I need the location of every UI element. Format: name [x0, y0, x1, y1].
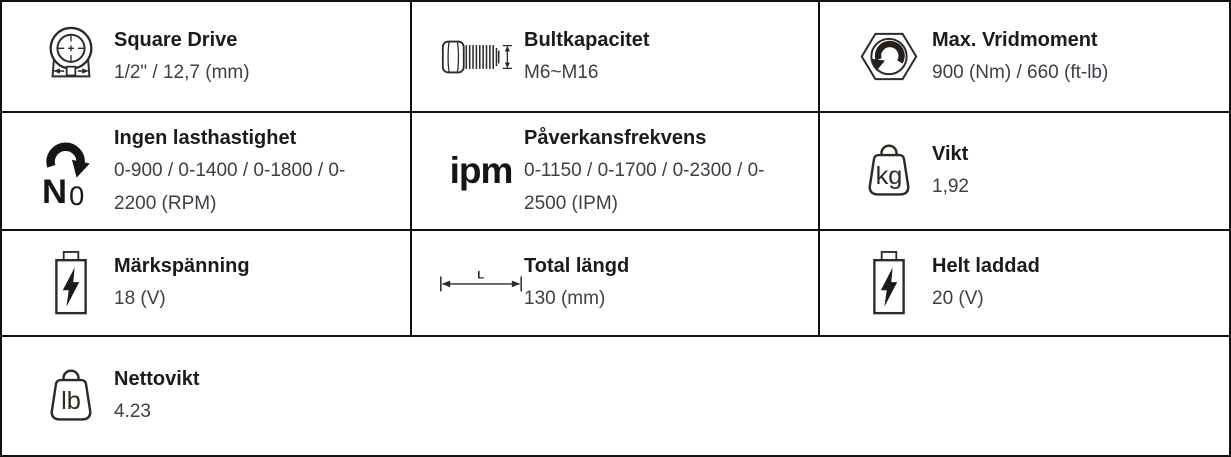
- no-load-speed-icon: N 0: [28, 136, 114, 206]
- product-specs-table: Square Drive 1/2" / 12,7 (mm) Bultkapaci…: [0, 0, 1231, 457]
- spec-title: Total längd: [524, 251, 790, 281]
- spec-cell-bolt-capacity: Bultkapacitet M6~M16: [412, 2, 820, 113]
- weight-kg-icon: kg: [846, 141, 932, 201]
- impact-rate-icon: ipm: [438, 150, 524, 192]
- spec-title: Nettovikt: [114, 364, 1223, 394]
- spec-cell-weight-kg: kg Vikt 1,92: [820, 113, 1229, 231]
- bolt-capacity-icon: [438, 37, 524, 77]
- spec-cell-max-torque: Max. Vridmoment 900 (Nm) / 660 (ft-lb): [820, 2, 1229, 113]
- spec-cell-impact-rate: ipm Påverkansfrekvens 0-1150 / 0-1700 / …: [412, 113, 820, 231]
- spec-cell-rated-voltage: Märkspänning 18 (V): [2, 231, 412, 337]
- spec-value: 20 (V): [932, 282, 1198, 315]
- spec-title: Helt laddad: [932, 251, 1198, 281]
- spec-title: Märkspänning: [114, 251, 380, 281]
- spec-value: 0-1150 / 0-1700 / 0-2300 / 0-2500 (IPM): [524, 154, 790, 220]
- battery-voltage-icon: [28, 250, 114, 316]
- svg-text:N: N: [42, 173, 67, 206]
- spec-title: Max. Vridmoment: [932, 25, 1198, 55]
- spec-cell-square-drive: Square Drive 1/2" / 12,7 (mm): [2, 2, 412, 113]
- weight-lb-icon: lb: [28, 366, 114, 426]
- spec-value: 4.23: [114, 395, 1223, 428]
- spec-value: M6~M16: [524, 56, 790, 89]
- spec-value: 1,92: [932, 170, 1198, 203]
- spec-value: 900 (Nm) / 660 (ft-lb): [932, 56, 1198, 89]
- svg-text:lb: lb: [61, 387, 81, 415]
- spec-title: Bultkapacitet: [524, 25, 790, 55]
- svg-text:0: 0: [69, 180, 84, 206]
- overall-length-icon: L: [438, 268, 524, 298]
- spec-title: Square Drive: [114, 25, 380, 55]
- spec-value: 130 (mm): [524, 282, 790, 315]
- spec-cell-overall-length: L Total längd 130 (mm): [412, 231, 820, 337]
- spec-title: Vikt: [932, 139, 1198, 169]
- spec-cell-net-weight: lb Nettovikt 4.23: [2, 337, 1229, 455]
- svg-text:kg: kg: [876, 162, 903, 190]
- svg-text:L: L: [477, 269, 484, 281]
- spec-value: 0-900 / 0-1400 / 0-1800 / 0-2200 (RPM): [114, 154, 380, 220]
- spec-title: Påverkansfrekvens: [524, 123, 790, 153]
- spec-value: 1/2" / 12,7 (mm): [114, 56, 380, 89]
- battery-voltage-icon: [846, 250, 932, 316]
- spec-value: 18 (V): [114, 282, 380, 315]
- spec-cell-no-load-speed: N 0 Ingen lasthastighet 0-900 / 0-1400 /…: [2, 113, 412, 231]
- max-torque-icon: [846, 31, 932, 82]
- square-drive-icon: [28, 24, 114, 90]
- spec-cell-fully-charged: Helt laddad 20 (V): [820, 231, 1229, 337]
- spec-title: Ingen lasthastighet: [114, 123, 380, 153]
